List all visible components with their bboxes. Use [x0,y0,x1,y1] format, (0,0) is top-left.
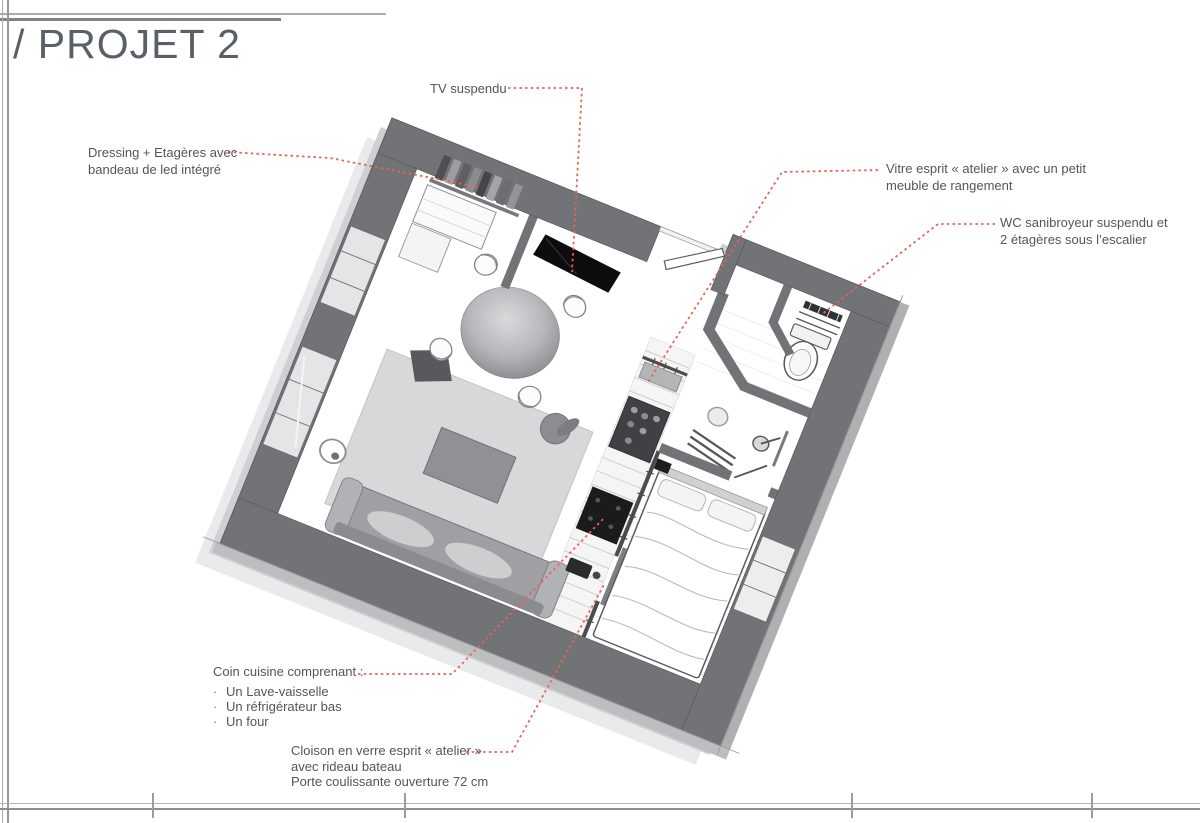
annotation-kitchen-item-text: Un réfrigérateur bas [226,699,342,714]
annotation-wc-line2: 2 étagères sous l’escalier [1000,231,1168,248]
annotation-dressing: Dressing + Etagères avec bandeau de led … [88,144,237,178]
annotation-kitchen-title: Coin cuisine comprenant : [213,663,363,680]
annotation-cloison-line1: Cloison en verre esprit « atelier » [291,743,488,759]
bullet: · [213,684,226,699]
annotation-kitchen-item: ·Un réfrigérateur bas [213,699,363,714]
presentation-page: / PROJET 2 [0,0,1200,823]
annotation-dressing-line2: bandeau de led intégré [88,161,237,178]
annotation-tv: TV suspendu [430,80,507,97]
floor-plan-3d [0,0,1200,823]
annotation-wc-line1: WC sanibroyeur suspendu et [1000,214,1168,231]
annotation-cloison-line3: Porte coulissante ouverture 72 cm [291,774,488,790]
annotation-wc: WC sanibroyeur suspendu et 2 étagères so… [1000,214,1168,248]
annotation-kitchen-item: ·Un Lave-vaisselle [213,684,363,699]
annotation-kitchen-item-text: Un Lave-vaisselle [226,684,329,699]
annotation-cloison-line2: avec rideau bateau [291,759,488,775]
annotation-vitre: Vitre esprit « atelier » avec un petit m… [886,160,1086,194]
annotation-kitchen-item-text: Un four [226,714,269,729]
annotation-vitre-line1: Vitre esprit « atelier » avec un petit [886,160,1086,177]
annotation-vitre-line2: meuble de rangement [886,177,1086,194]
bullet: · [213,714,226,729]
bullet: · [213,699,226,714]
annotation-dressing-line1: Dressing + Etagères avec [88,144,237,161]
annotation-cloison: Cloison en verre esprit « atelier » avec… [291,743,488,790]
annotation-kitchen-item: ·Un four [213,714,363,729]
annotation-tv-text: TV suspendu [430,80,507,97]
annotation-kitchen: Coin cuisine comprenant : ·Un Lave-vaiss… [213,663,363,729]
